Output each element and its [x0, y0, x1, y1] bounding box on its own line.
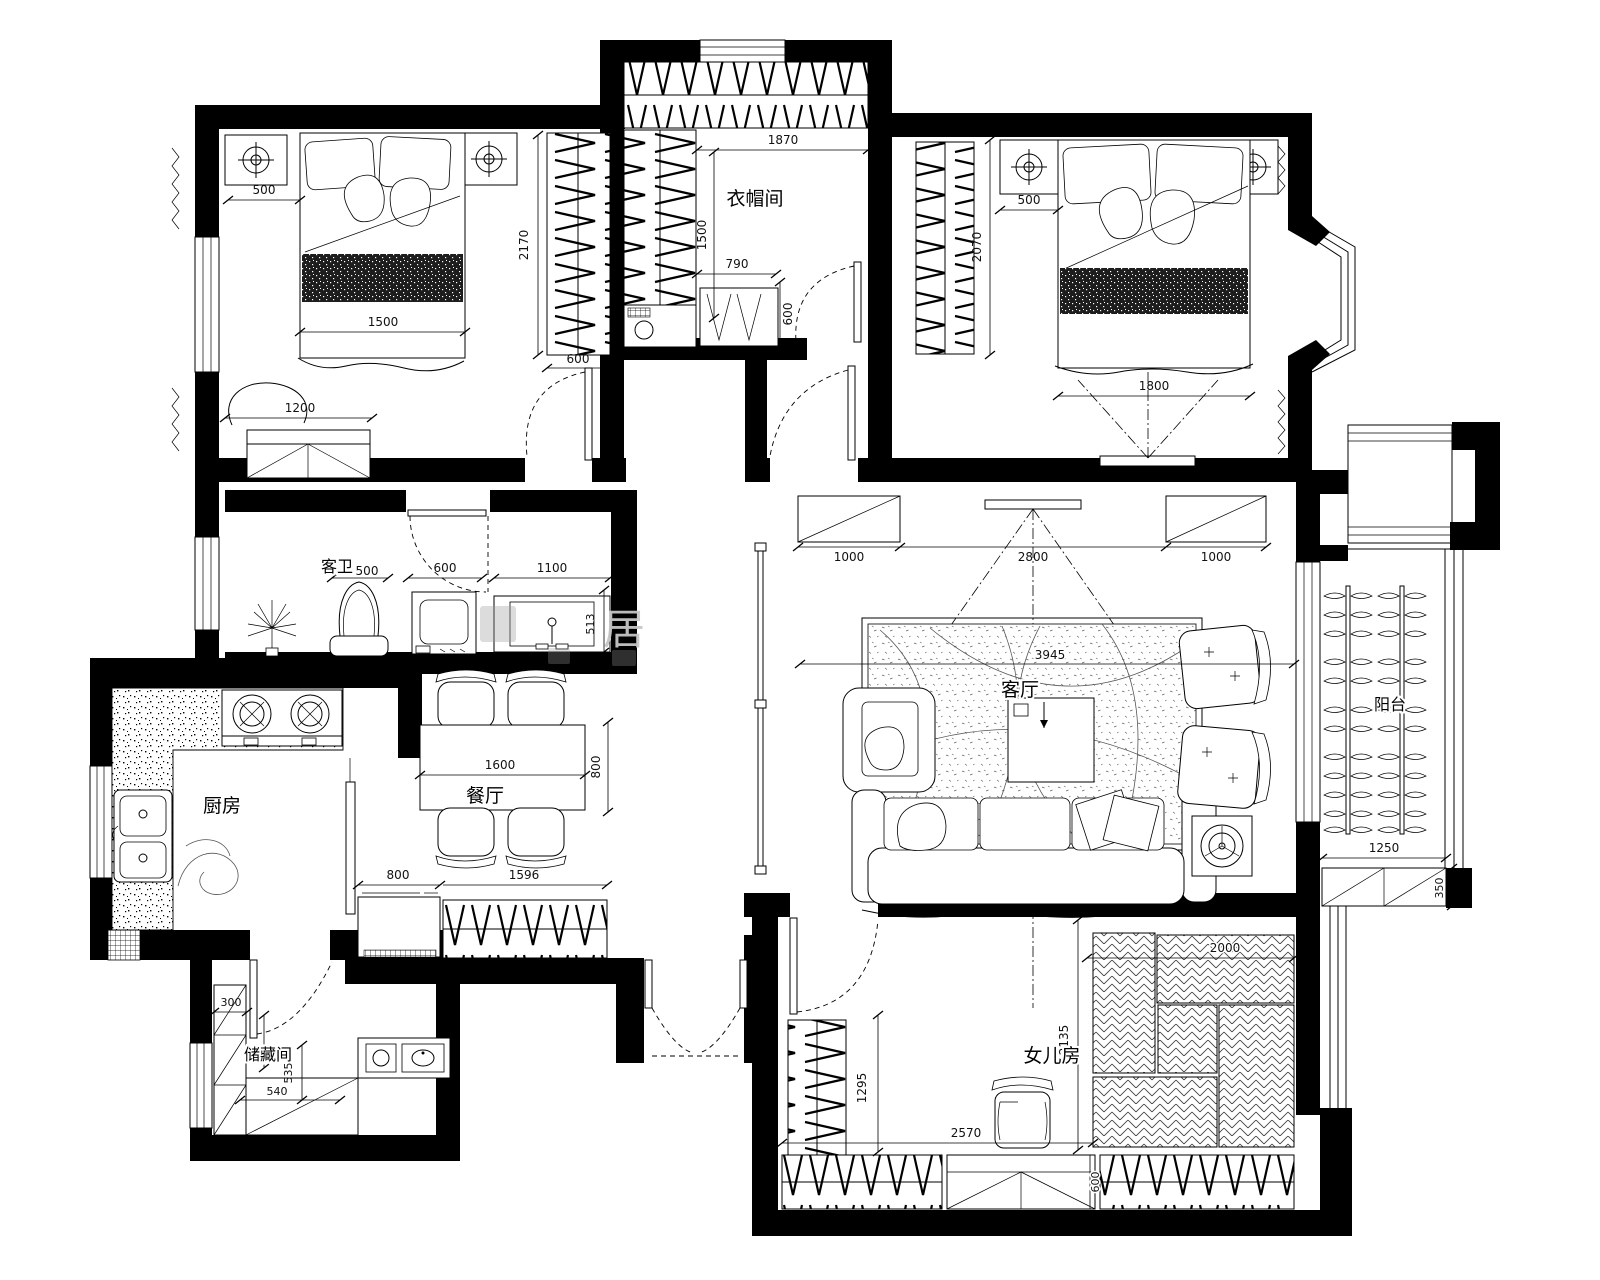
faucet-detail — [178, 840, 238, 895]
window-kitchen-left — [90, 766, 112, 878]
window-bath-left — [195, 537, 219, 630]
dim: 600 — [1089, 1172, 1102, 1193]
window-closet-top — [700, 40, 785, 62]
door-entrance — [645, 960, 747, 1056]
dining-chair — [506, 808, 566, 868]
dim: 790 — [726, 257, 749, 271]
window-bedroom-left — [195, 237, 219, 372]
dining-chair — [436, 808, 496, 868]
toilet — [330, 582, 388, 656]
wardrobe — [624, 130, 696, 308]
dim: 1596 — [509, 868, 540, 882]
dim: 500 — [356, 564, 379, 578]
kitchen-sliding-door — [346, 758, 355, 914]
dim: 1500 — [368, 315, 399, 329]
desk-chair — [992, 1077, 1053, 1148]
window-box-under-balcony — [1322, 868, 1446, 906]
door-bedroom-right — [770, 366, 855, 460]
dim: 600 — [781, 303, 795, 326]
wardrobe — [624, 62, 868, 128]
break-line — [1278, 146, 1285, 194]
dim: 3945 — [1035, 648, 1066, 662]
dim: 1800 — [1139, 379, 1170, 393]
coffee-table — [1008, 698, 1094, 782]
watermark-text: 居 — [603, 605, 645, 654]
wardrobe — [916, 142, 974, 354]
plant-icon — [248, 600, 296, 656]
wardrobe — [547, 133, 610, 355]
dim: 535 — [282, 1063, 295, 1084]
dim: 800 — [387, 868, 410, 882]
dim: 2070 — [970, 232, 984, 263]
dim: 2170 — [517, 230, 531, 261]
floor-plan-canvas: 500 1500 2170 600 1200 1870 1500 790 600… — [0, 0, 1600, 1280]
door-bedroom-left — [526, 368, 592, 460]
bedroom-right — [916, 140, 1285, 466]
cabinet — [700, 288, 778, 346]
sink — [113, 790, 172, 882]
sofa — [852, 790, 1216, 918]
dim: 600 — [434, 561, 457, 575]
tv-cabinet — [1166, 496, 1266, 542]
tv-cabinet — [798, 496, 900, 542]
dim: 350 — [1433, 878, 1446, 899]
daughter-room — [782, 933, 1294, 1209]
bedroom-left — [172, 133, 610, 478]
washing-machine — [624, 305, 696, 347]
dim: 1295 — [855, 1073, 869, 1104]
dim: 1500 — [695, 220, 709, 251]
dim: 1250 — [1369, 841, 1400, 855]
side-chair — [1177, 725, 1271, 810]
bathroom — [248, 582, 610, 656]
dim: 1600 — [485, 758, 516, 772]
plant-rack — [1324, 586, 1372, 834]
armchair — [843, 688, 935, 792]
dim: 2570 — [951, 1126, 982, 1140]
room-label-daughter: 女儿房 — [1023, 1045, 1080, 1067]
break-line — [1278, 390, 1285, 454]
bed-double — [298, 133, 465, 371]
shoe-cabinet — [358, 893, 440, 957]
glass-partition — [755, 543, 766, 874]
room-label-balcony: 阳台 — [1374, 695, 1406, 714]
dim: 2000 — [1210, 941, 1241, 955]
dim: 2800 — [1018, 550, 1049, 564]
dim: 540 — [267, 1085, 288, 1098]
break-line — [172, 388, 179, 451]
dim: 500 — [253, 183, 276, 197]
floor-plan: 500 1500 2170 600 1200 1870 1500 790 600… — [0, 0, 1600, 1280]
cabinet-row — [782, 1155, 1294, 1209]
room-label-closet: 衣帽间 — [726, 188, 783, 210]
washbasin — [358, 1038, 450, 1078]
door-closet — [796, 262, 861, 342]
door-bath — [408, 510, 488, 592]
washing-machine — [412, 592, 476, 654]
dresser — [247, 430, 370, 478]
dim: 1200 — [285, 401, 316, 415]
dim: 800 — [589, 756, 603, 779]
room-label-bath: 客卫 — [321, 557, 353, 576]
room-label-dining: 餐厅 — [466, 785, 504, 807]
room-label-kitchen: 厨房 — [203, 795, 241, 817]
kitchen-vent-box — [108, 930, 140, 960]
dim: 1000 — [834, 550, 865, 564]
floor-lamp — [1192, 816, 1252, 876]
dim: 500 — [1018, 193, 1041, 207]
window-storage-left — [190, 1043, 212, 1128]
bed-double — [1055, 140, 1253, 374]
dim: 600 — [567, 352, 590, 366]
dim: 300 — [221, 996, 242, 1009]
dim: 513 — [584, 614, 597, 635]
window-living-balcony — [1296, 562, 1320, 822]
hall-wardrobe — [443, 900, 607, 958]
living-room — [798, 496, 1271, 1008]
wardrobe — [788, 1020, 846, 1158]
door-daughter — [790, 918, 878, 1014]
room-label-storage: 储藏间 — [244, 1045, 292, 1064]
break-line — [172, 148, 179, 229]
door-storage — [250, 960, 332, 1038]
dining-chair — [436, 670, 496, 728]
side-chair — [1178, 624, 1270, 710]
dim: 1870 — [768, 133, 799, 147]
stove — [222, 690, 342, 746]
dim: 1000 — [1201, 550, 1232, 564]
tatami-bed — [1093, 933, 1294, 1147]
dim: 1100 — [537, 561, 568, 575]
shaft-box — [1348, 425, 1452, 543]
room-label-living: 客厅 — [1001, 679, 1039, 701]
dining-chair — [506, 670, 566, 728]
